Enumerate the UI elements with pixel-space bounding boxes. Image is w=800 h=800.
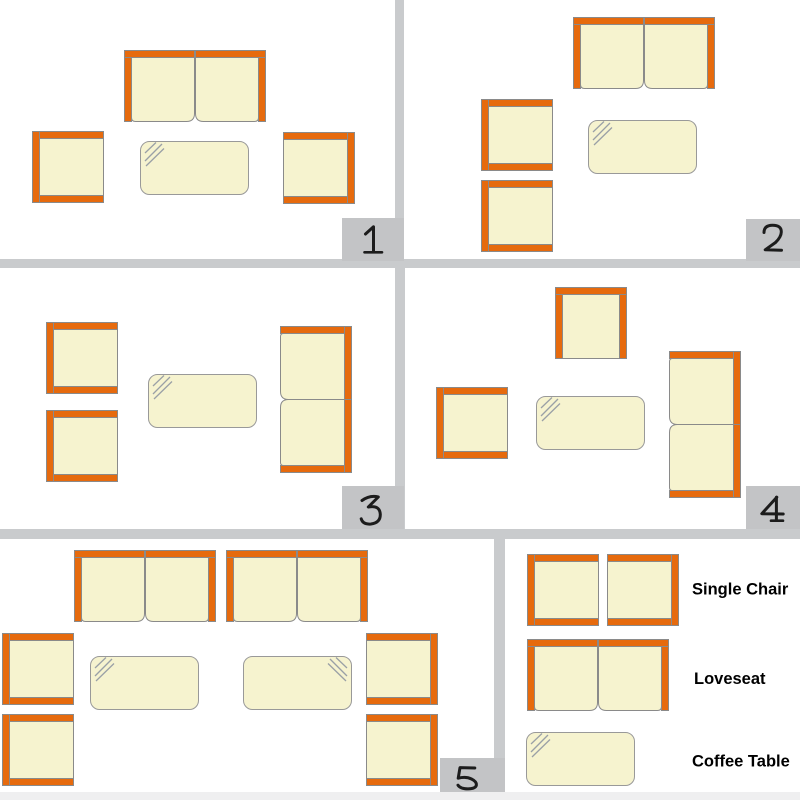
svg-text:Coffee Table: Coffee Table	[692, 753, 790, 771]
svg-text:Single Chair: Single Chair	[692, 581, 789, 599]
svg-text:Loveseat: Loveseat	[694, 670, 766, 688]
